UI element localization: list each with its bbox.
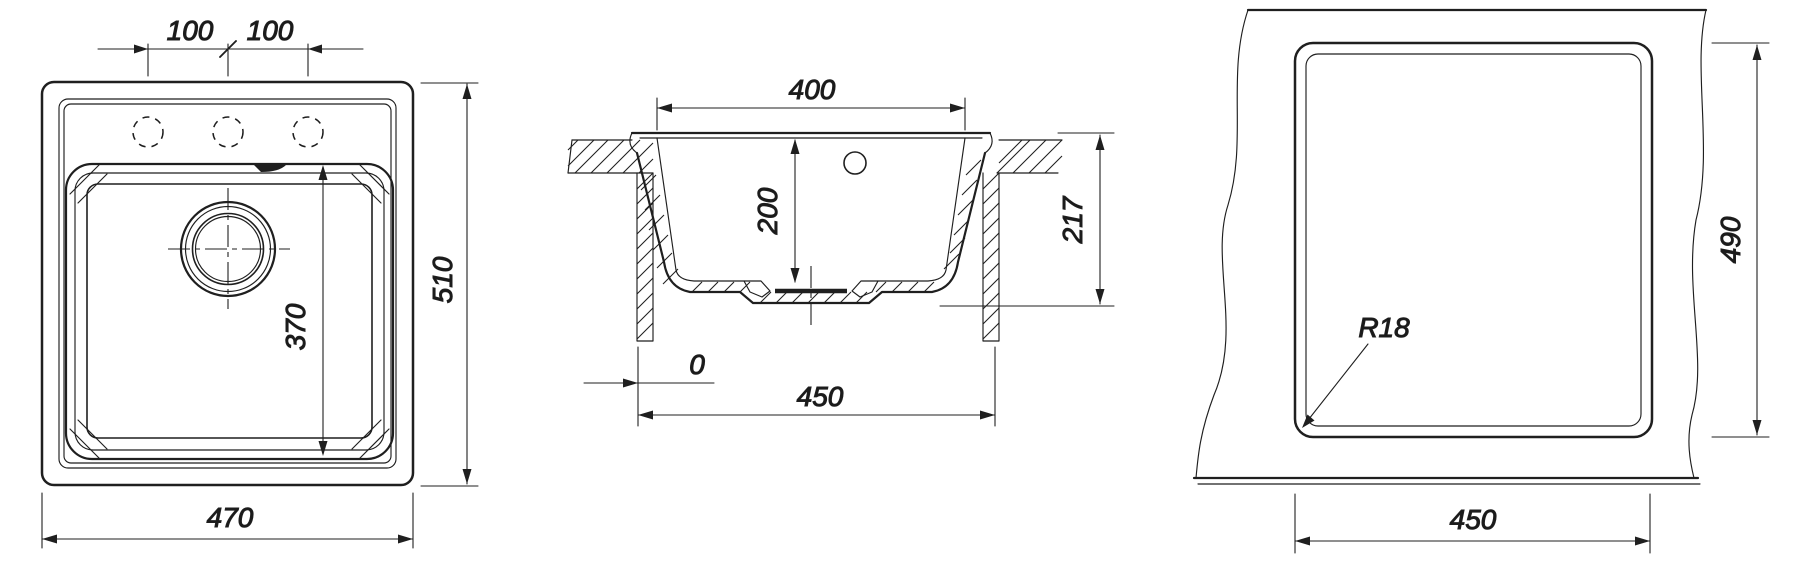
bowl-corner-chamfers xyxy=(70,165,389,458)
dim-label-overall-width: 470 xyxy=(207,502,254,533)
cabinet-panel-right xyxy=(983,173,999,341)
cutout-inner-line xyxy=(1306,54,1641,426)
dim-label-hole-pitch-left: 100 xyxy=(167,15,214,46)
dim-label-bottom-width: 450 xyxy=(797,381,844,412)
worktop-right-section xyxy=(997,140,1062,173)
dim-label-bowl-length: 370 xyxy=(280,303,311,350)
dim-cutout-height: 490 xyxy=(1712,43,1769,437)
dim-hole-pitch: 100 100 xyxy=(98,15,363,76)
overflow-hole-section xyxy=(844,152,866,174)
dim-cutout-width: 450 xyxy=(1295,494,1650,553)
dim-label-corner-radius: R18 xyxy=(1358,312,1410,343)
worktop-cutout-view: 490 450 R18 xyxy=(1194,10,1769,553)
cabinet-panel-left xyxy=(637,173,653,341)
cutout-outline xyxy=(1295,43,1652,437)
dim-label-bowl-depth: 200 xyxy=(752,187,783,235)
dim-label-bowl-top-width: 400 xyxy=(789,74,836,105)
bowl-bottom-edge xyxy=(87,184,372,438)
dim-label-edge-offset: 0 xyxy=(689,349,705,380)
dim-bowl-length: 370 xyxy=(280,165,328,456)
sink-shell-section xyxy=(630,133,992,328)
dim-label-cutout-width: 450 xyxy=(1450,504,1497,535)
bowl-mid-line xyxy=(75,173,384,450)
drain xyxy=(168,188,290,309)
dim-overall-width: 470 xyxy=(42,493,413,548)
dim-bowl-top-width: 400 xyxy=(657,74,965,130)
top-view: 100 100 370 470 510 xyxy=(42,15,478,548)
dim-label-overall-depth: 510 xyxy=(427,256,458,303)
dim-overall-depth: 510 xyxy=(421,83,478,486)
corner-radius-callout: R18 xyxy=(1302,312,1410,428)
technical-drawing-canvas: 100 100 370 470 510 xyxy=(0,0,1800,573)
faucet-hole-right xyxy=(293,117,323,147)
dim-label-overall-height: 217 xyxy=(1057,195,1088,244)
dim-label-cutout-height: 490 xyxy=(1715,216,1746,263)
faucet-holes xyxy=(133,117,323,147)
dim-bowl-depth: 200 xyxy=(752,139,800,283)
faucet-hole-center xyxy=(213,117,243,147)
dim-label-hole-pitch-right: 100 xyxy=(247,15,294,46)
cross-section-view: 400 200 217 0 xyxy=(568,74,1114,426)
faucet-hole-left xyxy=(133,117,163,147)
break-line-left xyxy=(1196,10,1248,478)
overflow-slot xyxy=(254,165,286,172)
sink-technical-drawing: 100 100 370 470 510 xyxy=(0,0,1800,573)
break-line-right xyxy=(1689,10,1706,478)
bowl-outer-edge xyxy=(66,164,393,459)
